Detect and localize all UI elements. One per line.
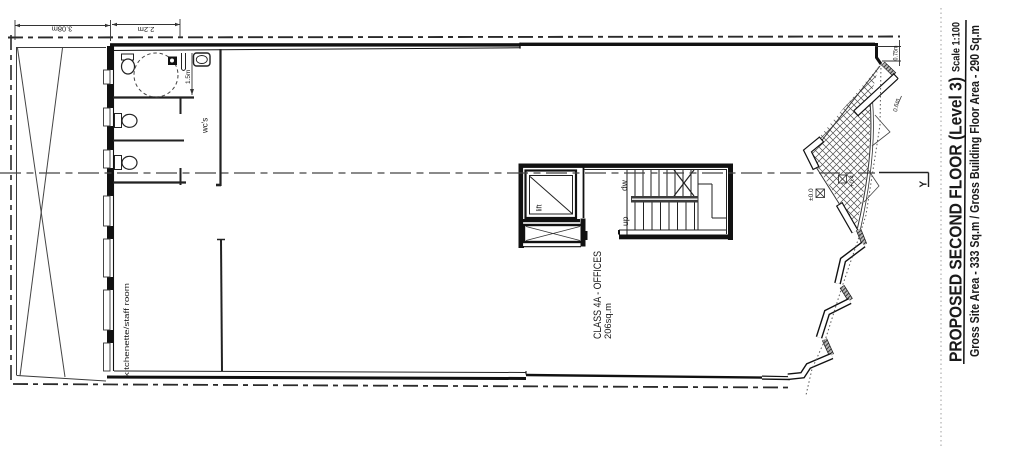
- svg-text:lift: lift: [537, 204, 544, 211]
- svg-text:kitchenette/staff room: kitchenette/staff room: [122, 283, 131, 377]
- svg-text:Scale 1:100: Scale 1:100: [951, 22, 963, 72]
- svg-text:3.08m: 3.08m: [52, 25, 73, 34]
- svg-text:0.75m: 0.75m: [894, 46, 900, 61]
- svg-text:PROPOSED SECOND FLOOR (Level 3: PROPOSED SECOND FLOOR (Level 3): [946, 77, 966, 362]
- svg-text:206sq.m: 206sq.m: [603, 303, 613, 339]
- svg-text:+0.4: +0.4: [850, 174, 856, 187]
- svg-text:1.5m: 1.5m: [185, 70, 192, 84]
- svg-text:±0.0: ±0.0: [808, 188, 815, 201]
- svg-text:up: up: [620, 216, 630, 226]
- svg-text:Y: Y: [919, 181, 930, 188]
- svg-text:2.2m: 2.2m: [138, 25, 155, 34]
- svg-text:dw: dw: [619, 179, 629, 191]
- svg-text:wc's: wc's: [201, 118, 210, 134]
- svg-text:Gross Site Area - 333 Sq.m / G: Gross Site Area - 333 Sq.m / Gross Build…: [968, 25, 982, 357]
